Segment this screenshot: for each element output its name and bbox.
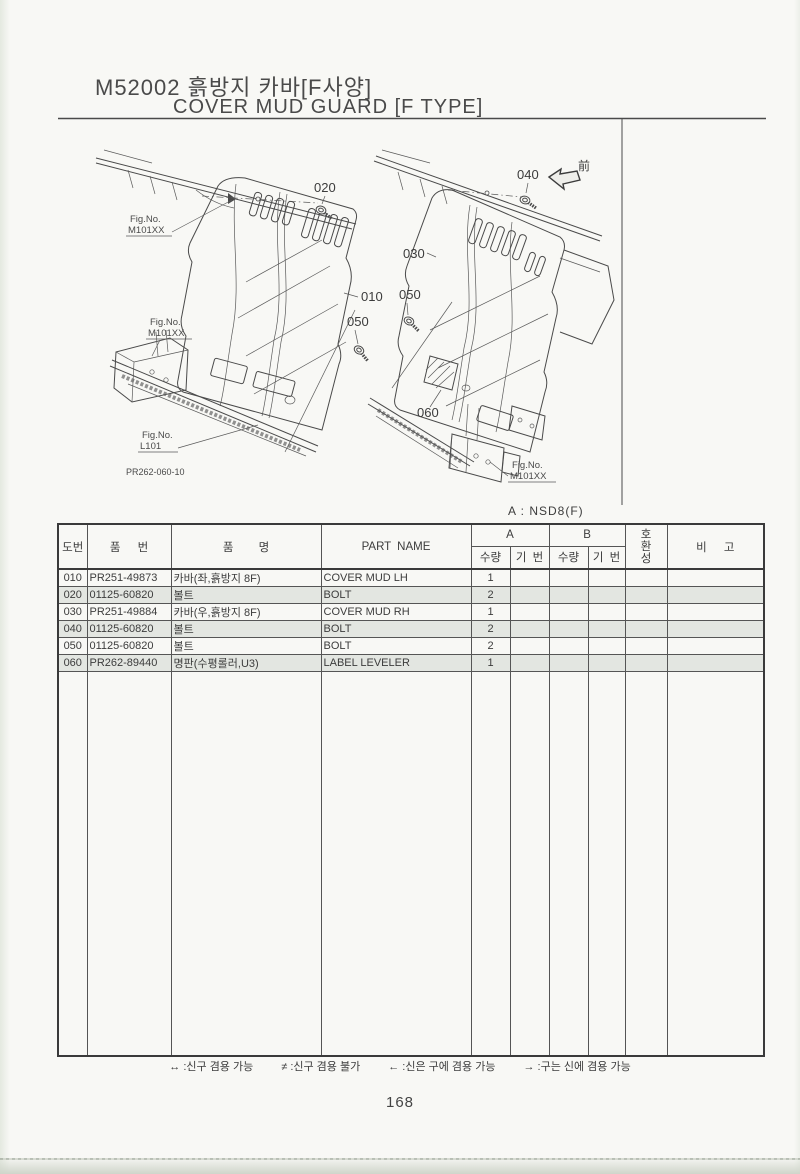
front-marker-label: 前 [578,158,590,173]
legend-item-neither: ≠ :신구 겸용 불가 [281,1058,360,1074]
svg-text:L101: L101 [140,441,161,452]
cell-part-name: BOLT [321,621,471,638]
cell-serial-b [588,587,625,604]
cell-serial-b [588,655,625,672]
cell-qty-a: 2 [471,638,510,655]
cell-serial-a [510,621,549,638]
cell-part-no: 01125-60820 [87,638,171,655]
cell-qty-b [549,587,588,604]
col-header-fig-no: 도번 [58,524,87,569]
cell-qty-a: 2 [471,587,510,604]
col-header-group-b: B [549,524,625,546]
cell-qty-a: 1 [471,569,510,587]
col-header-serial-a: 기 번 [510,546,549,569]
col-header-qty-a: 수량 [471,546,510,569]
cell-part-name: LABEL LEVELER [321,655,471,672]
svg-text:M101XX: M101XX [128,225,165,236]
cell-qty-b [549,621,588,638]
cell-name-kr: 카바(우,흙방지 8F) [171,604,321,621]
svg-text:Fig.No.: Fig.No. [512,460,543,471]
table-row-050: 050 01125-60820 볼트 BOLT 2 [58,638,764,655]
cell-part-no: 01125-60820 [87,587,171,604]
col-header-remarks: 비 고 [667,524,764,569]
svg-text:Fig.No.: Fig.No. [150,317,181,328]
svg-text:M101XX: M101XX [148,328,185,339]
col-header-part-name: PART NAME [321,524,471,569]
cell-compat [625,638,667,655]
front-arrow-icon [549,169,580,189]
svg-text:Fig.No.: Fig.No. [142,430,173,441]
cell-part-name: BOLT [321,638,471,655]
callout-020: 020 [314,180,336,195]
table-row-030: 030 PR251-49884 카바(우,흙방지 8F) COVER MUD R… [58,604,764,621]
cell-part-no: PR251-49873 [87,569,171,587]
cell-part-name: COVER MUD RH [321,604,471,621]
cell-remarks [667,569,764,587]
callout-050-left: 050 [347,314,369,329]
col-header-qty-b: 수량 [549,546,588,569]
cell-name-kr: 볼트 [171,587,321,604]
cell-remarks [667,621,764,638]
table-row-020: 020 01125-60820 볼트 BOLT 2 [58,587,764,604]
cell-qty-a: 1 [471,604,510,621]
cell-name-kr: 카바(좌,흙방지 8F) [171,569,321,587]
cell-compat [625,569,667,587]
bolt-icon-020 [315,205,335,219]
callout-010: 010 [361,289,383,304]
svg-text:Fig.No.: Fig.No. [130,214,161,225]
callout-060: 060 [417,405,439,420]
cell-qty-a: 2 [471,621,510,638]
page-number: 168 [0,1094,800,1111]
cell-part-no: PR251-49884 [87,604,171,621]
left-assembly-drawing [96,150,357,456]
compat-char-3: 성 [628,553,665,565]
cell-serial-b [588,569,625,587]
catalog-page: M52002 흙방지 카바[F사양] COVER MUD GUARD [F TY… [0,0,800,1174]
cell-qty-b [549,638,588,655]
cell-name-kr: 볼트 [171,621,321,638]
cell-serial-a [510,655,549,672]
right-assembly-drawing [368,150,614,482]
table-row-040: 040 01125-60820 볼트 BOLT 2 [58,621,764,638]
cell-qty-a: 1 [471,655,510,672]
compat-char-1: 호 [628,529,665,541]
fig-ref-m101xx-right: Fig.No. M101XX [490,460,556,482]
compat-char-2: 환 [628,541,665,553]
cell-compat [625,587,667,604]
col-header-compat: 호 환 성 [625,524,667,569]
drawing-reference: PR262-060-10 [126,467,185,477]
fig-ref-m101xx-mid-left: Fig.No. M101XX [146,317,192,356]
col-header-name-kr: 품 명 [171,524,321,569]
cell-remarks [667,587,764,604]
bolt-icon-050-right [402,315,422,331]
callout-030: 030 [403,246,425,261]
cell-part-no: PR262-89440 [87,655,171,672]
legend-item-both: ↔ :신구 겸용 가능 [169,1058,253,1074]
cell-serial-a [510,638,549,655]
cell-remarks [667,655,764,672]
cell-qty-b [549,569,588,587]
callout-050-right: 050 [399,287,421,302]
cell-remarks [667,604,764,621]
cell-serial-b [588,638,625,655]
cell-fig-no: 030 [58,604,87,621]
table-empty-region [58,672,764,1057]
cell-part-name: COVER MUD LH [321,569,471,587]
cell-name-kr: 볼트 [171,638,321,655]
cell-fig-no: 050 [58,638,87,655]
cell-serial-a [510,587,549,604]
cell-fig-no: 010 [58,569,87,587]
table-row-060: 060 PR262-89440 명판(수평롤러,U3) LABEL LEVELE… [58,655,764,672]
callout-040: 040 [517,167,539,182]
cell-fig-no: 040 [58,621,87,638]
table-row-010: 010 PR251-49873 카바(좌,흙방지 8F) COVER MUD L… [58,569,764,587]
variant-note: A : NSD8(F) [508,504,584,518]
cell-compat [625,621,667,638]
cell-serial-a [510,604,549,621]
cell-fig-no: 020 [58,587,87,604]
col-header-part-no: 품 번 [87,524,171,569]
cell-serial-b [588,621,625,638]
cell-qty-b [549,604,588,621]
cell-part-name: BOLT [321,587,471,604]
bolt-icon-040 [519,195,539,208]
cell-remarks [667,638,764,655]
legend-item-new-to-old: ← :신은 구에 겸용 가능 [388,1058,495,1074]
bolt-icon-050-left [352,344,372,361]
cell-part-no: 01125-60820 [87,621,171,638]
scan-edge-bottom [0,1159,800,1174]
cell-compat [625,655,667,672]
parts-table: 도번 품 번 품 명 PART NAME A B 호 환 성 비 고 수량 기 … [57,523,765,1057]
legend-item-old-to-new: → :구는 신에 겸용 가능 [523,1058,630,1074]
col-header-serial-b: 기 번 [588,546,625,569]
parts-diagram: 020 010 050 030 040 050 060 [0,0,800,512]
cell-serial-a [510,569,549,587]
cell-compat [625,604,667,621]
cell-serial-b [588,604,625,621]
cell-fig-no: 060 [58,655,87,672]
cell-name-kr: 명판(수평롤러,U3) [171,655,321,672]
svg-text:M101XX: M101XX [510,471,547,482]
fig-ref-m101xx-upper-left: Fig.No. M101XX [126,200,232,236]
compatibility-legend: ↔ :신구 겸용 가능 ≠ :신구 겸용 불가 ← :신은 구에 겸용 가능 →… [169,1058,630,1074]
col-header-group-a: A [471,524,549,546]
cell-qty-b [549,655,588,672]
